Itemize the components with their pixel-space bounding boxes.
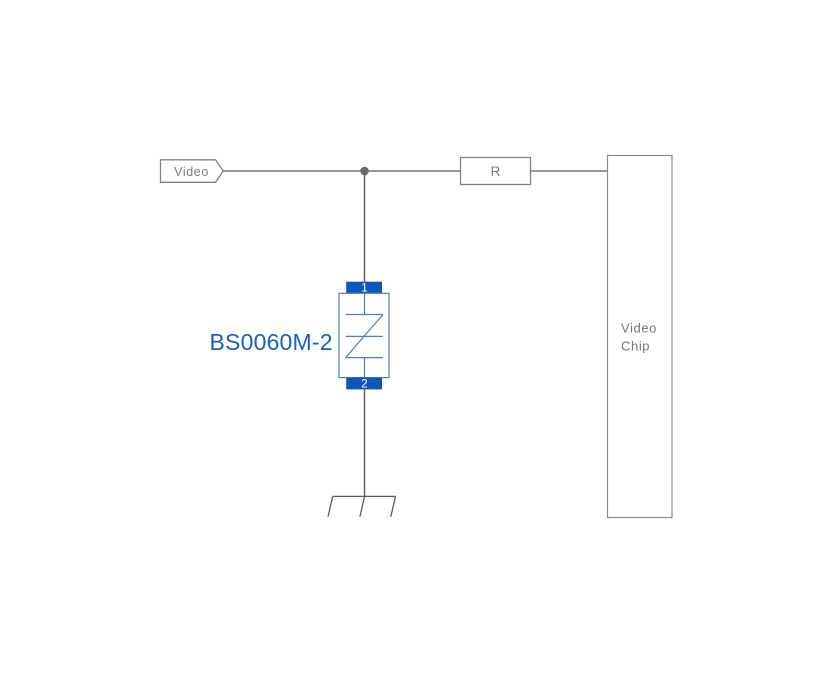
svg-text:BS0060M-2: BS0060M-2 (210, 329, 333, 355)
svg-text:Video: Video (621, 321, 657, 336)
svg-text:R: R (491, 164, 501, 179)
svg-text:Video: Video (174, 165, 209, 179)
svg-text:2: 2 (361, 379, 367, 391)
svg-text:Chip: Chip (621, 339, 650, 354)
